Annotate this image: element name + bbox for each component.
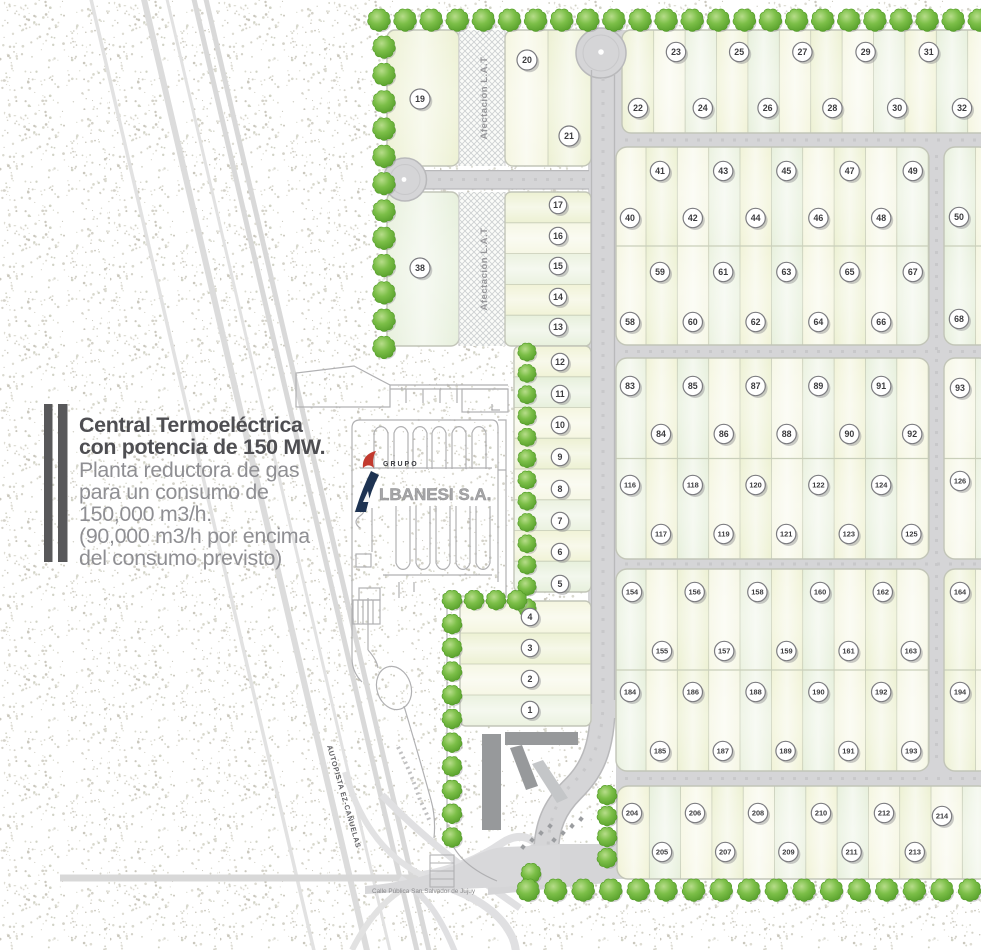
svg-text:19: 19 <box>415 94 425 104</box>
svg-text:25: 25 <box>734 47 744 57</box>
svg-text:155: 155 <box>656 647 668 656</box>
svg-text:162: 162 <box>877 588 889 597</box>
svg-text:8: 8 <box>558 484 563 494</box>
svg-text:67: 67 <box>908 267 918 277</box>
svg-text:210: 210 <box>815 809 827 818</box>
svg-text:(90,000 m3/h por encima: (90,000 m3/h por encima <box>79 524 310 548</box>
svg-text:17: 17 <box>553 200 563 210</box>
svg-text:189: 189 <box>779 747 791 756</box>
svg-text:191: 191 <box>842 747 854 756</box>
svg-text:209: 209 <box>782 848 794 857</box>
svg-text:12: 12 <box>555 357 565 367</box>
svg-text:204: 204 <box>626 809 639 818</box>
svg-text:163: 163 <box>905 647 917 656</box>
svg-text:43: 43 <box>718 166 728 176</box>
svg-text:11: 11 <box>555 389 564 399</box>
svg-text:Planta reductora de gas: Planta reductora de gas <box>79 458 299 482</box>
svg-text:159: 159 <box>780 647 792 656</box>
svg-text:21: 21 <box>564 131 574 141</box>
svg-text:85: 85 <box>688 381 698 391</box>
svg-text:40: 40 <box>625 213 635 223</box>
svg-text:con potencia de 150 MW.: con potencia de 150 MW. <box>79 435 325 459</box>
svg-text:Afectación L.A.T: Afectación L.A.T <box>479 57 490 140</box>
svg-text:119: 119 <box>718 530 730 539</box>
svg-text:GRUPO: GRUPO <box>383 461 419 468</box>
svg-text:28: 28 <box>828 103 838 113</box>
svg-text:44: 44 <box>751 213 761 223</box>
svg-text:para un consumo de: para un consumo de <box>79 480 269 504</box>
svg-text:150,000 m3/h.: 150,000 m3/h. <box>79 502 212 526</box>
svg-text:45: 45 <box>782 166 792 176</box>
svg-text:7: 7 <box>558 516 563 526</box>
svg-text:211: 211 <box>846 848 858 857</box>
svg-text:Calle Pública San Salvador de: Calle Pública San Salvador de Jujuy <box>372 888 476 895</box>
svg-text:68: 68 <box>954 314 964 324</box>
svg-text:124: 124 <box>875 481 888 490</box>
svg-text:3: 3 <box>528 643 533 653</box>
svg-text:184: 184 <box>624 688 637 697</box>
svg-text:126: 126 <box>954 477 966 486</box>
svg-text:13: 13 <box>553 322 563 332</box>
svg-text:49: 49 <box>908 166 918 176</box>
svg-text:50: 50 <box>954 212 964 222</box>
svg-text:187: 187 <box>717 747 729 756</box>
svg-text:6: 6 <box>558 547 563 557</box>
svg-text:4: 4 <box>528 612 533 622</box>
svg-text:31: 31 <box>924 47 934 57</box>
svg-text:88: 88 <box>782 429 792 439</box>
svg-text:41: 41 <box>655 166 665 176</box>
svg-text:5: 5 <box>558 579 563 589</box>
svg-text:66: 66 <box>876 317 886 327</box>
svg-text:87: 87 <box>751 381 761 391</box>
svg-text:86: 86 <box>719 429 729 439</box>
svg-text:92: 92 <box>907 429 917 439</box>
svg-text:60: 60 <box>688 317 698 327</box>
svg-text:48: 48 <box>876 213 886 223</box>
svg-text:157: 157 <box>718 647 730 656</box>
svg-text:212: 212 <box>878 809 890 818</box>
svg-text:118: 118 <box>687 481 699 490</box>
svg-text:47: 47 <box>845 166 855 176</box>
svg-text:58: 58 <box>625 317 635 327</box>
svg-text:Afectación L.A.T: Afectación L.A.T <box>479 228 490 311</box>
svg-text:90: 90 <box>845 429 855 439</box>
svg-text:116: 116 <box>624 481 636 490</box>
svg-text:Central Termoeléctrica: Central Termoeléctrica <box>79 413 304 437</box>
svg-text:122: 122 <box>812 481 824 490</box>
svg-text:32: 32 <box>957 103 967 113</box>
svg-text:9: 9 <box>558 452 563 462</box>
svg-text:154: 154 <box>626 588 639 597</box>
svg-text:38: 38 <box>415 263 425 273</box>
svg-text:91: 91 <box>876 381 886 391</box>
svg-text:192: 192 <box>875 688 887 697</box>
svg-text:42: 42 <box>688 213 698 223</box>
svg-text:14: 14 <box>553 292 563 302</box>
svg-text:214: 214 <box>936 812 949 821</box>
svg-text:64: 64 <box>814 317 824 327</box>
svg-text:161: 161 <box>842 647 854 656</box>
svg-text:206: 206 <box>689 809 701 818</box>
svg-text:15: 15 <box>553 261 563 271</box>
svg-text:65: 65 <box>845 267 855 277</box>
svg-text:188: 188 <box>749 688 761 697</box>
svg-text:2: 2 <box>528 674 533 684</box>
svg-text:120: 120 <box>749 481 761 490</box>
svg-text:62: 62 <box>751 317 761 327</box>
svg-text:164: 164 <box>954 588 967 597</box>
svg-text:121: 121 <box>780 530 792 539</box>
svg-text:30: 30 <box>892 103 902 113</box>
svg-text:117: 117 <box>655 530 667 539</box>
svg-text:59: 59 <box>655 267 665 277</box>
svg-text:185: 185 <box>654 747 666 756</box>
svg-text:del consumo previsto): del consumo previsto) <box>79 546 282 570</box>
svg-text:194: 194 <box>954 688 967 697</box>
svg-text:10: 10 <box>555 420 565 430</box>
svg-text:29: 29 <box>861 47 871 57</box>
svg-text:160: 160 <box>814 588 826 597</box>
svg-text:93: 93 <box>955 383 965 393</box>
svg-text:125: 125 <box>905 530 917 539</box>
svg-text:26: 26 <box>763 103 773 113</box>
svg-text:205: 205 <box>656 848 668 857</box>
svg-text:213: 213 <box>909 848 921 857</box>
svg-text:156: 156 <box>689 588 701 597</box>
svg-text:63: 63 <box>782 267 792 277</box>
svg-text:193: 193 <box>905 747 917 756</box>
svg-text:27: 27 <box>798 47 808 57</box>
svg-text:208: 208 <box>752 809 764 818</box>
svg-text:158: 158 <box>751 588 763 597</box>
svg-text:83: 83 <box>625 381 635 391</box>
svg-text:LBANESI S.A.: LBANESI S.A. <box>379 485 491 504</box>
svg-text:84: 84 <box>656 429 666 439</box>
svg-text:190: 190 <box>812 688 824 697</box>
svg-text:61: 61 <box>718 267 728 277</box>
svg-text:123: 123 <box>843 530 855 539</box>
svg-text:89: 89 <box>814 381 824 391</box>
svg-text:24: 24 <box>698 103 708 113</box>
svg-text:186: 186 <box>687 688 699 697</box>
svg-text:22: 22 <box>633 103 643 113</box>
svg-text:20: 20 <box>522 55 532 65</box>
svg-text:23: 23 <box>671 47 681 57</box>
svg-text:16: 16 <box>553 231 563 241</box>
svg-text:1: 1 <box>528 705 533 715</box>
svg-text:207: 207 <box>719 848 731 857</box>
svg-text:46: 46 <box>814 213 824 223</box>
